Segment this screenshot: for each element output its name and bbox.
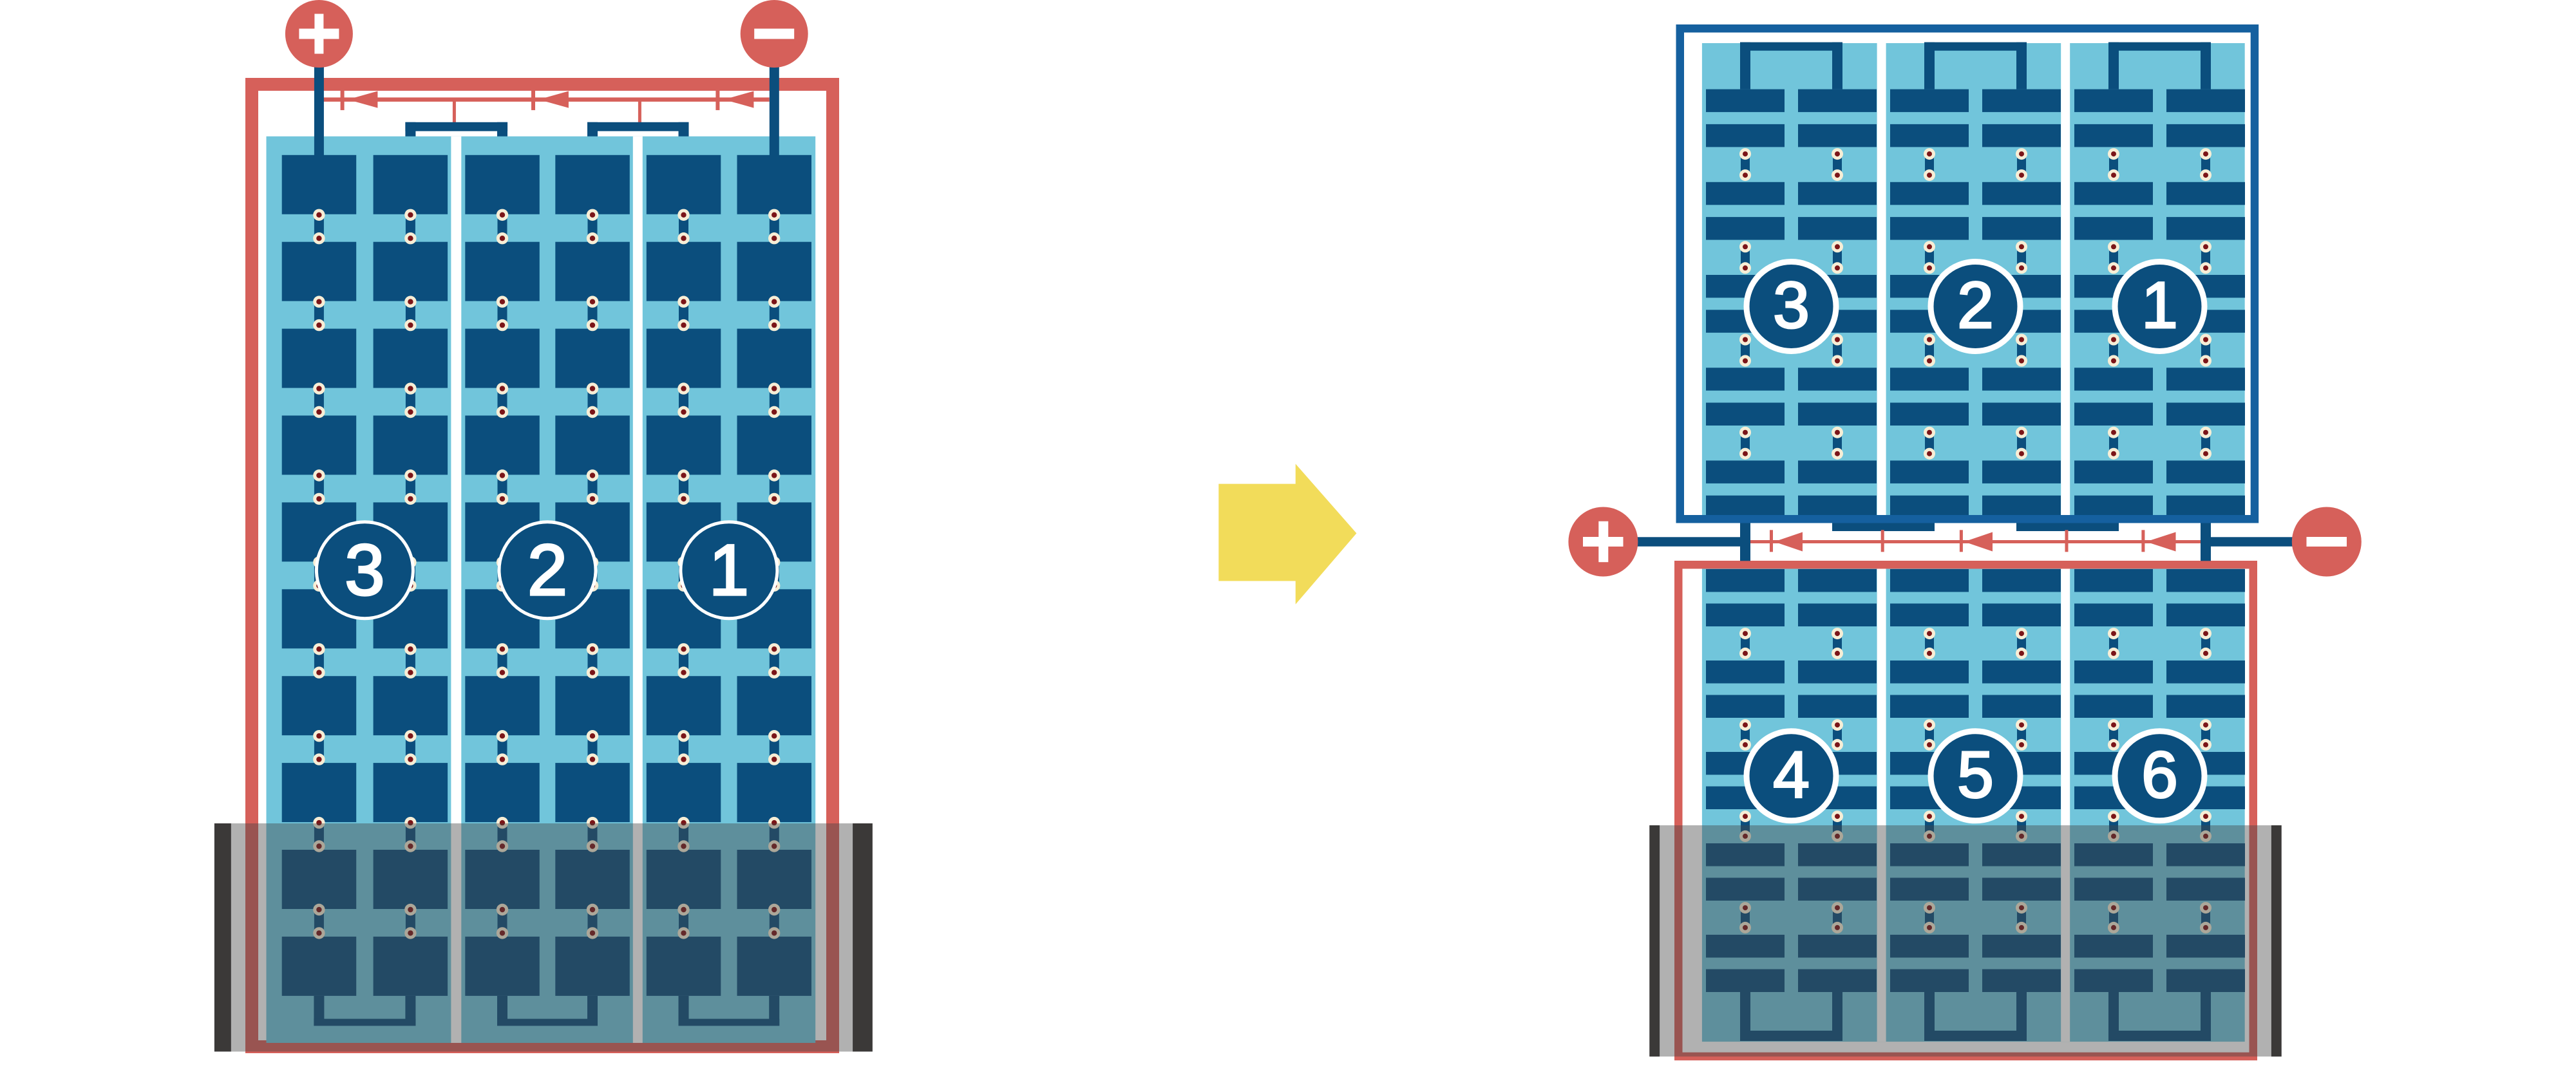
svg-text:5: 5: [1957, 738, 1994, 811]
svg-text:3: 3: [345, 530, 384, 610]
svg-text:1: 1: [709, 530, 749, 610]
svg-text:3: 3: [1773, 268, 1810, 342]
svg-text:6: 6: [2141, 738, 2178, 811]
svg-text:1: 1: [2141, 268, 2178, 342]
svg-text:2: 2: [1957, 268, 1994, 342]
svg-text:2: 2: [527, 530, 567, 610]
svg-text:4: 4: [1773, 738, 1810, 811]
